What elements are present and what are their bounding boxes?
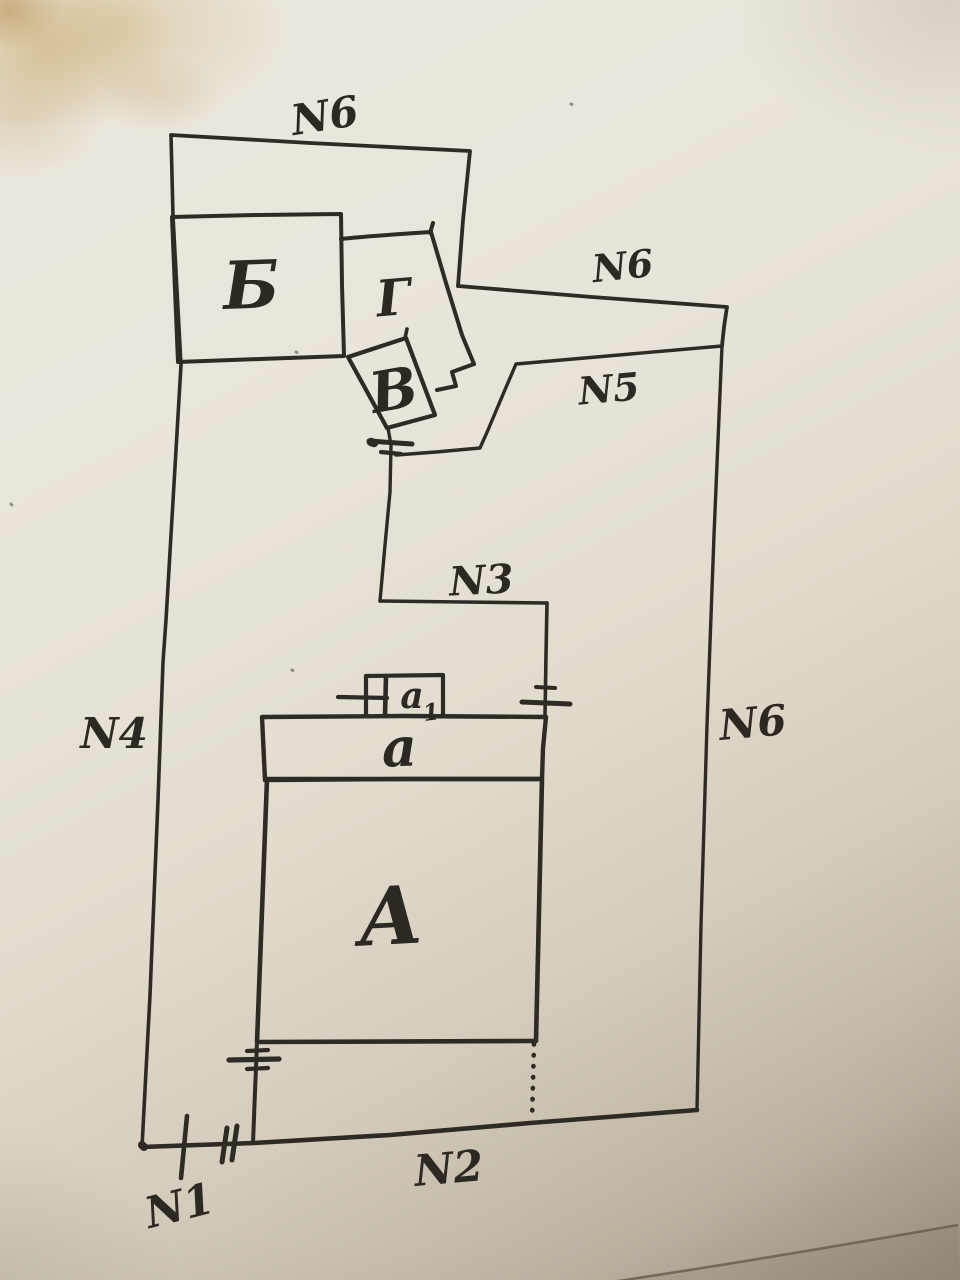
- label-annex-a: а: [381, 714, 418, 779]
- building-g-notch: [437, 364, 474, 390]
- gate-mark-bottomleft-short1: [247, 1050, 268, 1051]
- label-n6-right: N6: [715, 695, 789, 750]
- paper-photo: N6 N6 N5 N3 N4 N6 N1 N2 Б Г В А а а 1: [0, 0, 960, 1280]
- dotted-line-right: [532, 1044, 534, 1120]
- boundary-right-edge: [697, 346, 722, 1110]
- gate-mark-bottomleft-long: [229, 1059, 279, 1060]
- label-building-a: А: [351, 867, 426, 965]
- gate-mark-v-short: [381, 452, 401, 454]
- gate-mark-column-short: [536, 687, 555, 688]
- boundary-top-edge: [171, 135, 470, 286]
- label-building-g: Г: [372, 266, 417, 328]
- label-n1: N1: [138, 1174, 219, 1240]
- gate-mark-v-blob: [371, 442, 374, 443]
- label-a1-base: а: [400, 675, 423, 717]
- building-g-top-edge: [341, 232, 431, 239]
- label-n4: N4: [78, 709, 148, 758]
- gate-mark-bottom-double-2: [232, 1126, 237, 1160]
- gate-mark-a1: [338, 697, 387, 698]
- gate-mark-bottomleft-short2: [247, 1068, 268, 1069]
- label-a1-sub: 1: [421, 698, 441, 727]
- label-building-v: В: [363, 354, 423, 428]
- plan-sketch-svg: N6 N6 N5 N3 N4 N6 N1 N2 Б Г В А а а 1: [0, 0, 960, 1280]
- label-n3: N3: [446, 555, 515, 605]
- building-v-corner-tick: [405, 329, 407, 338]
- gate-mark-bottom-double-1: [222, 1128, 227, 1162]
- boundary-n5-segment: [396, 346, 722, 455]
- labels: N6 N6 N5 N3 N4 N6 N1 N2 Б Г В А а а 1: [78, 86, 788, 1239]
- building-g-right-edge: [431, 232, 474, 364]
- label-n6-top: N6: [286, 86, 362, 145]
- gate-mark-column-long: [522, 702, 570, 704]
- boundary-column-right-upper: [545, 603, 547, 716]
- label-n5: N5: [575, 363, 641, 413]
- label-n6-upper-right: N6: [589, 240, 656, 291]
- boundary-corner-blob: [142, 1145, 144, 1147]
- label-n2: N2: [410, 1141, 485, 1197]
- boundary-n6-upper-segment: [458, 286, 727, 346]
- label-building-b: Б: [220, 245, 281, 325]
- gate-mark-n1-tick: [181, 1116, 187, 1178]
